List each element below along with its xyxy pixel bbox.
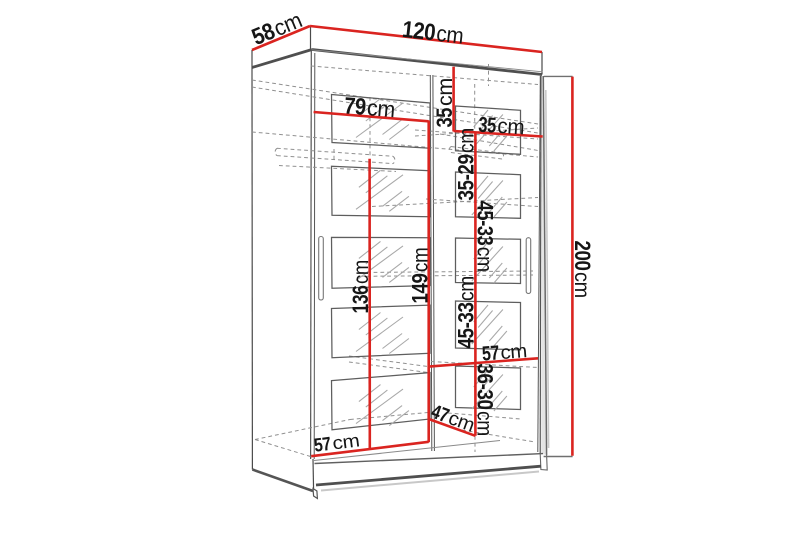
svg-text:45-33cm: 45-33cm — [454, 276, 479, 349]
svg-text:45-33cm: 45-33cm — [472, 201, 497, 272]
svg-text:200cm: 200cm — [570, 241, 595, 299]
svg-text:57cm: 57cm — [481, 339, 528, 365]
svg-text:35cm: 35cm — [432, 78, 457, 128]
svg-text:79cm: 79cm — [343, 92, 396, 122]
svg-text:35cm: 35cm — [478, 113, 525, 140]
svg-text:35-29cm: 35-29cm — [454, 128, 479, 201]
svg-text:136cm: 136cm — [348, 260, 373, 314]
svg-text:149cm: 149cm — [407, 248, 432, 304]
svg-text:36-30cm: 36-30cm — [472, 364, 497, 437]
